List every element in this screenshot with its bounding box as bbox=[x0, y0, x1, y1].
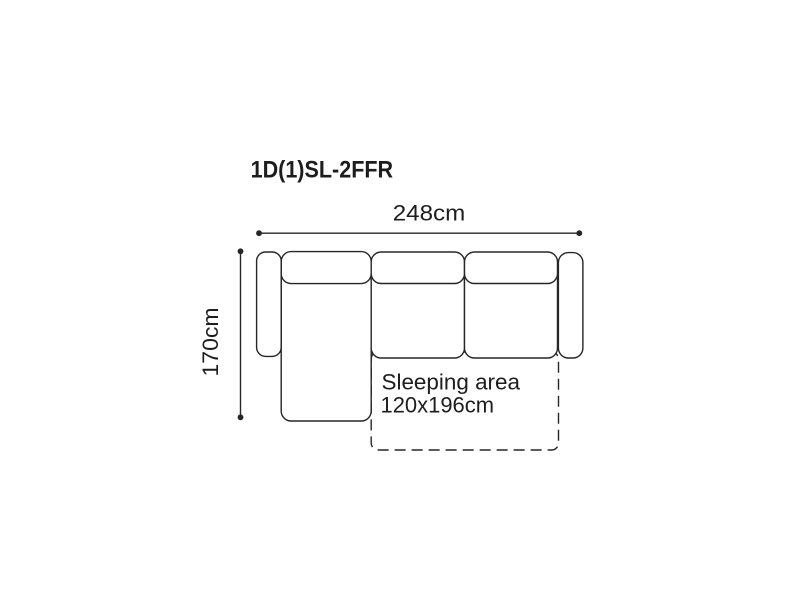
svg-text:120x196cm: 120x196cm bbox=[381, 393, 495, 418]
svg-text:248cm: 248cm bbox=[393, 201, 466, 226]
svg-text:Sleeping area: Sleeping area bbox=[382, 369, 521, 394]
svg-text:1D(1)SL-2FFR: 1D(1)SL-2FFR bbox=[251, 156, 394, 183]
svg-text:170cm: 170cm bbox=[198, 308, 223, 377]
